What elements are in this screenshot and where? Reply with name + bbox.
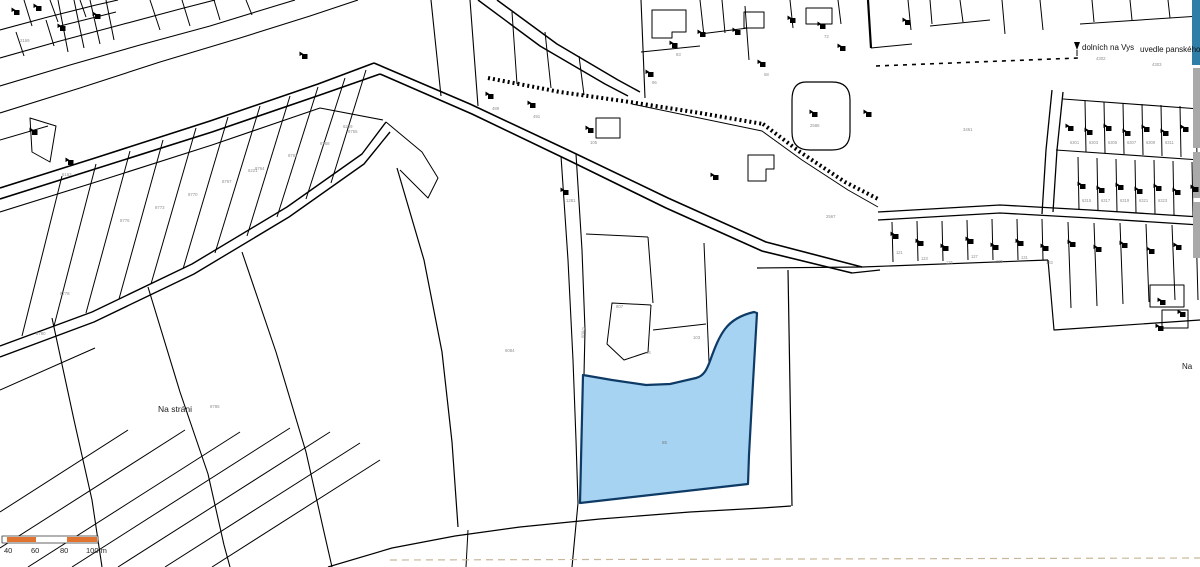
parcel-boundary [1063,99,1200,109]
building-icon [818,22,826,30]
building-icon [561,188,569,196]
parcel-boundary [748,155,774,181]
parcel-boundary [90,0,100,44]
parcel-boundary [512,12,517,84]
scale-label: 100 m [86,546,107,555]
highlighted-parcel[interactable] [580,312,757,503]
parcel-number-label: 6315 [1082,198,1092,203]
parcel-number-label: 6311 [1165,140,1175,145]
parcel-boundary [871,44,912,48]
scale-bar-segment [67,537,97,542]
parcel-boundary [700,28,748,34]
parcel-boundary [1085,101,1086,152]
parcel-boundary [1130,0,1132,20]
parcel-boundary [1002,0,1005,34]
parcel-boundary [790,0,793,28]
building-icon [586,126,594,134]
track-symbol [763,124,880,200]
parcel-number-label: 131 [1021,255,1029,260]
parcel-boundary [0,430,128,512]
parcel-boundary [862,260,1048,267]
parcel-boundary [214,0,220,20]
parcel-boundary [1092,0,1094,22]
parcel-boundary [586,234,648,237]
parcel-number-label: 8764 [255,166,265,171]
parcel-number-label: 8785 [210,404,220,409]
parcel-boundary [60,12,116,26]
parcel-boundary [722,0,725,33]
place-label: dolních na Vys [1082,43,1134,52]
parcel-boundary [641,46,700,52]
faint-track [390,558,1200,560]
parcel-number-label: 807 [616,304,624,309]
road-edge [878,213,1200,225]
parcel-number-label: 6084 [505,348,515,353]
parcel-boundary [50,0,58,22]
parcel-boundary [431,0,441,96]
parcel-boundary [700,0,704,36]
parcel-boundary [1094,223,1097,306]
building-icon [670,41,678,49]
cadastral-map-viewport[interactable]: 406080100 mNa strániNadolních na Vysuved… [0,0,1200,567]
building-icon [941,244,949,252]
place-label: uvedle panského [1140,45,1200,54]
parcel-boundary [182,0,190,26]
parcel-boundary [545,32,551,88]
road-edge [0,63,374,188]
parcel-boundary [0,348,95,390]
building-icon [1041,244,1049,252]
parcel-number-label: 4303 [1152,62,1162,67]
parcel-number-label: 8778 [60,291,70,296]
parcel-boundary [576,154,585,375]
parcel-number-label: 8770 [188,192,198,197]
parcel-boundary [744,12,764,28]
place-label: Na [1182,362,1193,371]
building-icon [12,8,20,16]
map-symbol [1074,42,1080,50]
building-icon [486,92,494,100]
parcel-boundary [466,530,468,567]
parcel-boundary [745,6,749,60]
parcel-number-label: 44 [646,350,651,355]
parcel-number-label: 2159 [20,38,30,43]
parcel-number-label: 6323 [1158,198,1168,203]
parcel-boundary [22,176,62,336]
parcel-boundary [561,156,578,567]
scale-bar-segment [7,537,36,542]
parcel-boundary [1192,162,1193,216]
parcel-boundary [1068,222,1071,308]
road-edge [0,74,380,199]
parcel-boundary [852,270,880,273]
parcel-number-label: 3461 [963,127,973,132]
parcel-number-label: 6317 [1101,198,1111,203]
parcel-number-label: 72 [824,34,829,39]
parcel-boundary [0,126,48,140]
parcel-boundary [1146,224,1149,302]
building-icon [864,110,872,118]
parcel-boundary [868,0,871,48]
parcel-boundary [106,0,114,40]
parcel-number-label: 125 [946,260,954,265]
parcel-boundary [960,0,963,22]
road-edge [374,63,862,267]
parcel-boundary [992,219,993,260]
parcel-boundary [579,56,584,95]
right-edge-blue-bar [1192,0,1200,65]
parcel-boundary [892,222,893,262]
parcel-number-label: 8776 [120,218,130,223]
parcel-number-label: 133 [1046,260,1054,265]
parcel-number-label: 103 [693,335,701,340]
parcel-boundary [46,20,54,46]
parcel-number-label: 58 [764,72,769,77]
parcel-boundary [1040,0,1043,30]
parcel-boundary [386,122,438,198]
parcel-number-label: 489 [492,106,500,111]
building-icon [1178,310,1186,318]
parcel-number-label: 8755 [348,129,358,134]
building-icon [1174,243,1182,251]
parcel-boundary [0,430,185,548]
parcel-boundary [876,58,1078,66]
parcel-boundary [1180,106,1181,157]
parcel-number-label: 6309 [1146,140,1156,145]
parcel-boundary [1123,103,1124,154]
parcel-boundary [277,87,318,217]
parcel-boundary [930,0,932,24]
building-icon [1147,247,1155,255]
parcel-boundary [652,10,686,38]
road-edge [1042,90,1052,214]
parcel-number-label: 8758 [320,141,330,146]
parcel-number-label: 6303 [1089,140,1099,145]
building-icon [646,70,654,78]
parcel-number-label: 6307 [1127,140,1137,145]
parcel-boundary [792,82,850,150]
parcel-boundary [1120,223,1123,304]
parcel-boundary [328,506,791,567]
parcel-boundary [757,267,862,268]
building-icon [758,60,766,68]
parcel-boundary [246,0,252,15]
road-edge [0,132,390,357]
parcel-boundary [942,221,943,261]
parcel-boundary [212,460,380,567]
parcel-boundary [806,8,832,24]
building-icon [1181,125,1189,133]
parcel-number-label: 8773 [155,205,165,210]
parcel-boundary [704,243,709,362]
parcel-number-label: 127 [971,254,979,259]
parcel-boundary [397,168,458,527]
parcel-number-label: 2586 [810,123,820,128]
parcel-number-label: 6301 [1070,140,1080,145]
parcel-number-label: 491 [533,114,541,119]
parcel-boundary [1097,158,1098,211]
parcel-boundary [930,20,990,26]
parcel-number-label: 96 [652,80,657,85]
building-icon [1016,239,1024,247]
right-edge-gray-bar [1193,202,1200,258]
building-icon [916,239,924,247]
parcel-number-label: 1281 [566,198,576,203]
parcel-boundary [788,270,792,506]
scale-label: 40 [4,546,12,555]
parcel-number-label: 2567 [826,214,836,219]
building-icon [1158,298,1166,306]
parcel-boundary [1142,104,1143,155]
parcel-boundary [1017,219,1018,260]
building-icon [34,4,42,12]
parcel-number-label: 6319 [1120,198,1130,203]
parcel-number-label: 4302 [1096,56,1106,61]
building-icon [1066,124,1074,132]
parcel-number-label: 105 [590,140,598,145]
parcel-boundary [596,118,620,138]
parcel-boundary [30,118,56,162]
parcel-number-label: 8767 [222,179,232,184]
parcel-boundary [148,287,230,567]
parcel-number-label: 6163 [62,172,72,177]
parcel-number-label: 129 [996,259,1004,264]
building-icon [300,52,308,60]
parcel-number-label: 6305 [1108,140,1118,145]
building-icon [698,30,706,38]
parcel-boundary [470,0,478,106]
parcel-boundary [607,303,651,360]
cadastral-map[interactable]: 406080100 mNa strániNadolních na Vysuved… [0,0,1200,567]
place-label: Na stráni [158,404,192,414]
parcel-boundary [641,0,645,98]
building-icon [711,173,719,181]
road-edge [478,0,628,96]
building-icon [891,232,899,240]
parcel-number-label: 83 [676,52,681,57]
scale-label: 80 [60,546,68,555]
parcel-boundary [1150,285,1184,307]
building-icon [903,18,911,26]
building-icon [810,110,818,118]
parcel-number-label: 123 [921,256,929,261]
scale-label: 60 [31,546,39,555]
road-edge [1053,92,1063,212]
right-edge-gray-bar [1193,68,1200,148]
parcel-boundary [653,324,706,330]
parcel-boundary [1168,0,1170,18]
parcel-number-label: 8761 [288,153,298,158]
parcel-boundary [648,237,653,303]
building-icon [991,243,999,251]
building-icon [966,237,974,245]
building-icon [66,158,74,166]
parcel-boundary [52,318,102,567]
parcel-number-label: 6321 [1139,198,1149,203]
road-edge [497,0,640,92]
building-icon [838,44,846,52]
building-icon [528,101,536,109]
parcel-boundary [1172,225,1175,300]
parcel-boundary [1042,219,1043,260]
parcel-boundary [908,0,911,30]
parcel-boundary [1080,16,1200,24]
highlighted-parcel-number: 85 [662,440,668,445]
parcel-number-label: 121 [896,250,904,255]
parcel-boundary [838,0,841,24]
parcel-number-label: 8780 [36,331,46,336]
parcel-boundary [1135,160,1136,213]
